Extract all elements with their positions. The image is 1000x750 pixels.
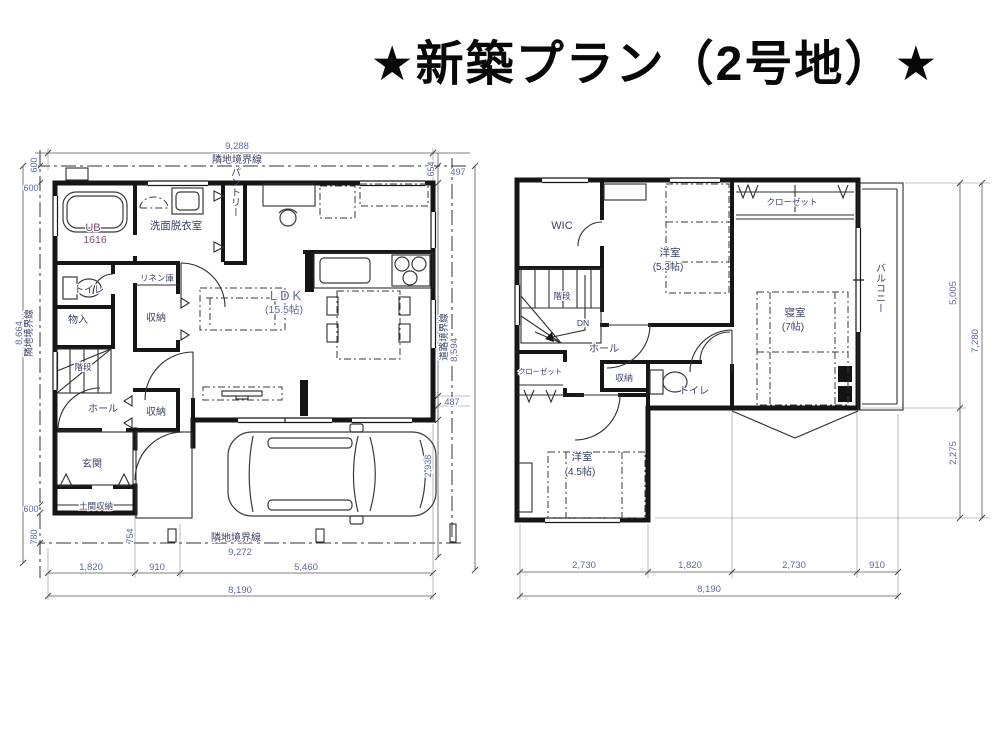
label-stairs-1f: 階段 [74,362,92,372]
label-yoshitsu53: 洋室 [660,246,681,259]
label-toilet-2f: トイレ [679,386,709,397]
dim-9272: 9,272 [228,547,252,558]
car [228,424,436,524]
label-wic: WIC [551,220,572,232]
dim-8190-1f: 8,190 [228,585,252,596]
dim-780: 780 [29,529,39,544]
dim-1820: 1,820 [79,562,103,573]
label-yoshitsu53-size: (5.3帖) [653,260,684,273]
dim-8594: 8,594 [449,338,460,362]
floor2-stairs [521,269,601,343]
dim-2730a: 2,730 [572,560,596,571]
floor2-labels: WIC 洋室 (5.3帖) クローゼット 寝室 (7帖) バルコニー 階段 DN… [518,197,886,478]
dim-9288: 9,288 [225,141,249,152]
dim-497: 497 [450,167,465,177]
dim-5005: 5,005 [948,281,959,305]
floor1-labels: UB 1616 洗面脱衣室 パントリー リネン庫 トイレ 物入 階段 収納 収納… [68,167,304,511]
label-hall-2f: ホール [589,343,619,355]
label-ub-size: 1616 [83,234,107,246]
dim-910-2f: 910 [869,560,885,571]
label-shinshitsu-size: (7帖) [782,320,804,333]
label-dn: DN [577,318,589,328]
label-monoire: 物入 [68,313,88,326]
dim-8190-2f: 8,190 [697,584,721,595]
second-floor-plan: WIC 洋室 (5.3帖) クローゼット 寝室 (7帖) バルコニー 階段 DN… [513,176,990,600]
label-toilet-1f: トイレ [74,285,104,296]
dim-910: 910 [149,562,165,573]
floor2-dimension-lines [517,180,990,600]
dim-600a: 600 [29,157,39,172]
label-shinshitsu: 寝室 [785,306,806,319]
floor2-dimensions: 5,005 7,280 2,275 2,730 1,820 2,730 910 … [572,281,981,595]
label-closet-low: 収納 [146,405,166,418]
label-ldk: LDK [270,288,304,303]
boundary-left-label: 隣地境界線 [23,309,35,357]
page-title: ★新築プラン（2号地）★ [315,24,995,94]
label-closet-mid: 収納 [146,311,166,324]
label-doma: 土間収納 [79,501,113,511]
label-pantry: パントリー [229,167,241,217]
boundary-top-label: 隣地境界線 [212,153,262,166]
label-linen: リネン庫 [140,273,175,283]
label-yoshitsu45-size: (4.5帖) [565,465,596,478]
dim-2938: 2,938 [423,455,433,478]
label-genkan: 玄関 [82,457,102,470]
dim-600c: 600 [23,504,38,514]
dim-2275: 2,275 [948,441,959,465]
label-closet-left: クローゼット [518,366,562,376]
label-stairs-2f: 階段 [553,291,571,301]
label-balcony: バルコニー [874,263,886,313]
dim-5460: 5,460 [294,562,318,573]
label-senmen: 洗面脱衣室 [150,219,203,232]
dim-2730b: 2,730 [782,560,806,571]
label-closet-top: クローゼット [766,197,817,207]
dim-754: 754 [125,528,135,543]
label-yoshitsu45: 洋室 [572,450,593,463]
dim-1820-2f: 1,820 [678,560,702,571]
floor-plans-drawing: UB 1616 洗面脱衣室 パントリー リネン庫 トイレ 物入 階段 収納 収納… [0,0,1000,750]
boundary-bottom-label: 隣地境界線 [211,531,261,544]
label-ub: UB [85,222,100,234]
dim-654: 654 [426,161,436,176]
label-hall-1f: ホール [88,403,118,415]
first-floor-plan: UB 1616 洗面脱衣室 パントリー リネン庫 トイレ 物入 階段 収納 収納… [14,141,478,600]
dim-487: 487 [444,397,459,407]
floor-plan-page: ★新築プラン（2号地）★ [0,0,1000,750]
label-ldk-size: (15.5帖) [265,303,303,316]
dim-7280: 7,280 [970,329,981,353]
label-shuno-2f: 収納 [615,372,633,383]
dim-600b: 600 [23,183,38,193]
